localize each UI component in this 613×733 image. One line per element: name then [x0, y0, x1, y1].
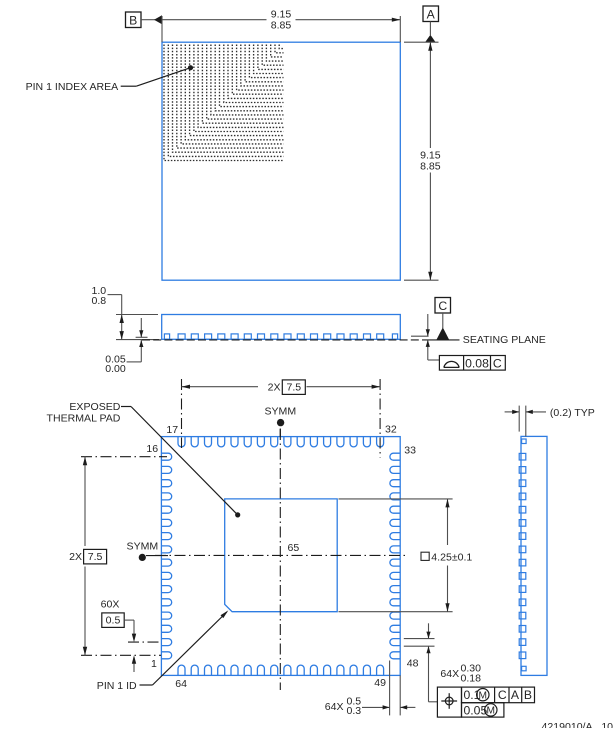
svg-text:8.85: 8.85: [420, 160, 441, 172]
svg-text:0.08: 0.08: [465, 356, 489, 370]
svg-text:C: C: [438, 299, 447, 313]
svg-text:7.5: 7.5: [286, 381, 301, 393]
svg-text:0.5: 0.5: [106, 614, 121, 626]
svg-text:4.25±0.1: 4.25±0.1: [431, 551, 472, 563]
svg-text:(0.2) TYP: (0.2) TYP: [550, 407, 595, 419]
svg-text:C: C: [498, 688, 507, 702]
svg-text:0.18: 0.18: [461, 672, 482, 684]
svg-text:64: 64: [175, 678, 187, 690]
svg-text:2X: 2X: [69, 551, 82, 563]
svg-text:0.05: 0.05: [464, 703, 488, 717]
svg-text:PIN 1 ID: PIN 1 ID: [97, 680, 137, 692]
svg-text:SYMM: SYMM: [264, 406, 296, 418]
svg-text:M: M: [487, 706, 496, 717]
svg-text:8.85: 8.85: [271, 19, 292, 31]
svg-text:B: B: [129, 14, 137, 28]
svg-text:7.5: 7.5: [88, 551, 103, 563]
svg-text:1: 1: [151, 658, 157, 670]
svg-text:4219010/A 10/2017: 4219010/A 10/2017: [542, 721, 613, 728]
svg-text:48: 48: [407, 658, 419, 670]
svg-text:A: A: [427, 7, 436, 21]
svg-text:32: 32: [385, 424, 397, 436]
svg-text:2X: 2X: [268, 381, 281, 393]
svg-text:49: 49: [374, 677, 386, 689]
svg-text:EXPOSED: EXPOSED: [69, 401, 120, 413]
svg-text:0.3: 0.3: [347, 705, 362, 717]
svg-text:65: 65: [288, 542, 300, 554]
svg-text:B: B: [524, 688, 532, 702]
svg-text:16: 16: [146, 443, 158, 455]
svg-text:64X: 64X: [325, 701, 344, 713]
svg-text:0.8: 0.8: [92, 295, 107, 307]
svg-text:60X: 60X: [101, 598, 120, 610]
svg-text:64X: 64X: [440, 668, 459, 680]
svg-text:17: 17: [166, 424, 178, 436]
svg-text:M: M: [479, 690, 488, 701]
svg-text:33: 33: [404, 444, 416, 456]
svg-text:SYMM: SYMM: [127, 541, 159, 553]
svg-text:0.00: 0.00: [105, 363, 126, 375]
svg-text:C: C: [493, 356, 502, 370]
svg-text:SEATING PLANE: SEATING PLANE: [463, 334, 546, 346]
svg-text:PIN 1 INDEX AREA: PIN 1 INDEX AREA: [26, 81, 120, 93]
svg-text:THERMAL PAD: THERMAL PAD: [47, 413, 121, 425]
svg-text:A: A: [511, 688, 520, 702]
